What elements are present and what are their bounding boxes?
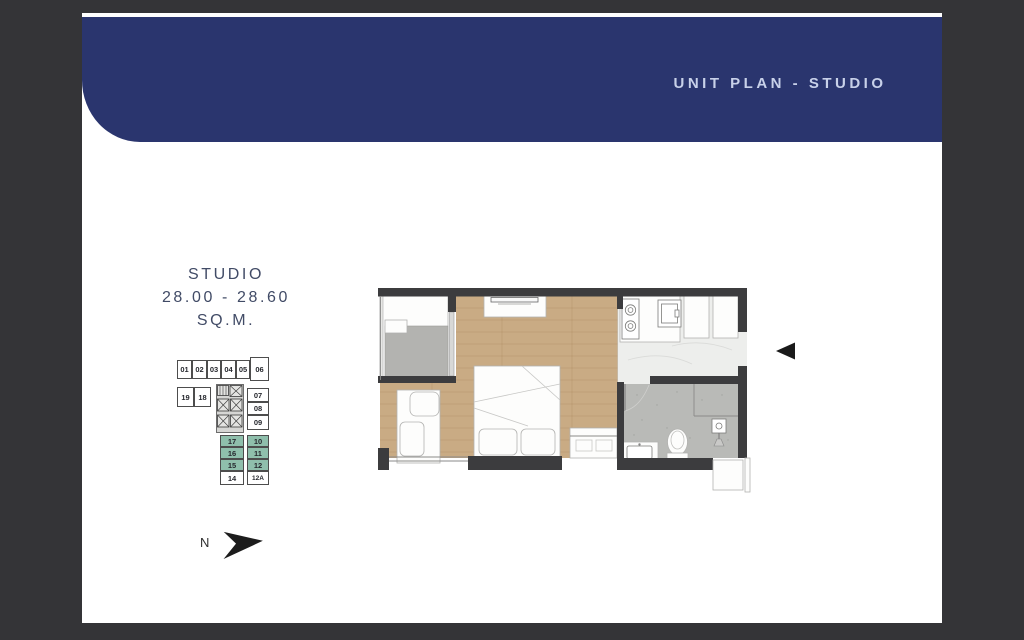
north-label: N xyxy=(200,535,210,550)
keyplan-core-icon xyxy=(216,384,244,433)
keyplan-unit-19: 19 xyxy=(177,387,194,407)
keyplan-unit-04: 04 xyxy=(221,360,236,379)
pillow-left xyxy=(479,429,517,455)
ac-ledge xyxy=(713,460,743,490)
key-plan: 01 02 03 04 05 06 19 18 07 08 09 17 16 1… xyxy=(168,354,288,494)
keyplan-unit-12: 12 xyxy=(247,459,269,471)
dresser xyxy=(570,428,617,458)
keyplan-unit-07: 07 xyxy=(247,388,269,402)
sliding-door xyxy=(450,312,455,376)
floor-plan xyxy=(372,280,762,495)
unit-area-suffix: SQ.M. xyxy=(116,309,336,332)
keyplan-unit-12A: 12A xyxy=(247,471,269,485)
keyplan-unit-16: 16 xyxy=(220,447,244,459)
north-compass: N xyxy=(200,527,270,559)
keyplan-unit-14: 14 xyxy=(220,471,244,485)
fridge xyxy=(684,296,709,338)
sofa-cushion-top xyxy=(410,392,439,416)
entry-threshold xyxy=(738,332,747,366)
keyplan-unit-15: 15 xyxy=(220,459,244,471)
header-band: UNIT PLAN - STUDIO xyxy=(82,17,942,142)
keyplan-unit-08: 08 xyxy=(247,402,269,415)
ledge-strip xyxy=(745,458,750,492)
vanity-sink-icon xyxy=(627,446,652,459)
toilet-icon xyxy=(668,429,688,455)
unit-info: STUDIO 28.00 - 28.60 SQ.M. xyxy=(116,263,336,332)
keyplan-unit-03: 03 xyxy=(207,360,221,379)
page-title: UNIT PLAN - STUDIO xyxy=(610,75,950,92)
sofa-cushion-seat xyxy=(400,422,424,456)
tv-icon xyxy=(491,298,538,303)
entry-direction-arrow-icon xyxy=(776,342,796,360)
unit-type-label: STUDIO xyxy=(116,263,336,286)
brochure-sheet: UNIT PLAN - STUDIO STUDIO 28.00 - 28.60 … xyxy=(82,13,942,623)
keyplan-unit-18: 18 xyxy=(194,387,211,407)
keyplan-unit-10: 10 xyxy=(247,435,269,447)
pillow-right xyxy=(521,429,555,455)
north-arrow-icon xyxy=(216,527,266,559)
keyplan-unit-05: 05 xyxy=(236,360,250,379)
keyplan-unit-09: 09 xyxy=(247,415,269,430)
shower-head-icon xyxy=(712,419,726,433)
washer xyxy=(713,296,738,338)
ac-pad xyxy=(385,326,448,380)
keyplan-unit-17: 17 xyxy=(220,435,244,447)
keyplan-unit-01: 01 xyxy=(177,360,192,379)
keyplan-unit-11: 11 xyxy=(247,447,269,459)
balcony-shelf xyxy=(385,320,407,333)
keyplan-unit-02: 02 xyxy=(192,360,207,379)
keyplan-unit-06: 06 xyxy=(250,357,269,381)
unit-area-range: 28.00 - 28.60 xyxy=(116,286,336,309)
